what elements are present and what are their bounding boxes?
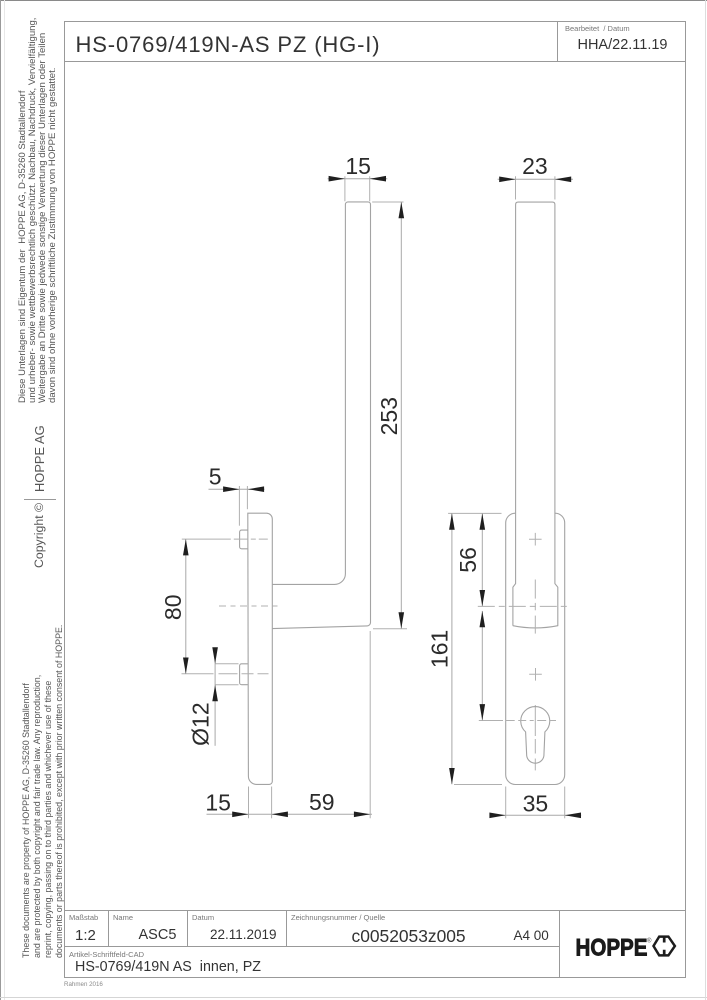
svg-text:35: 35 bbox=[523, 791, 549, 817]
svg-text:15: 15 bbox=[205, 790, 231, 816]
svg-text:59: 59 bbox=[309, 789, 335, 815]
svg-text:Ø12: Ø12 bbox=[188, 702, 214, 745]
svg-text:23: 23 bbox=[522, 153, 548, 179]
svg-text:5: 5 bbox=[209, 463, 222, 489]
svg-text:56: 56 bbox=[455, 547, 481, 573]
svg-text:15: 15 bbox=[345, 153, 371, 179]
svg-text:80: 80 bbox=[160, 595, 186, 621]
svg-text:253: 253 bbox=[376, 397, 402, 435]
svg-text:161: 161 bbox=[426, 630, 452, 668]
